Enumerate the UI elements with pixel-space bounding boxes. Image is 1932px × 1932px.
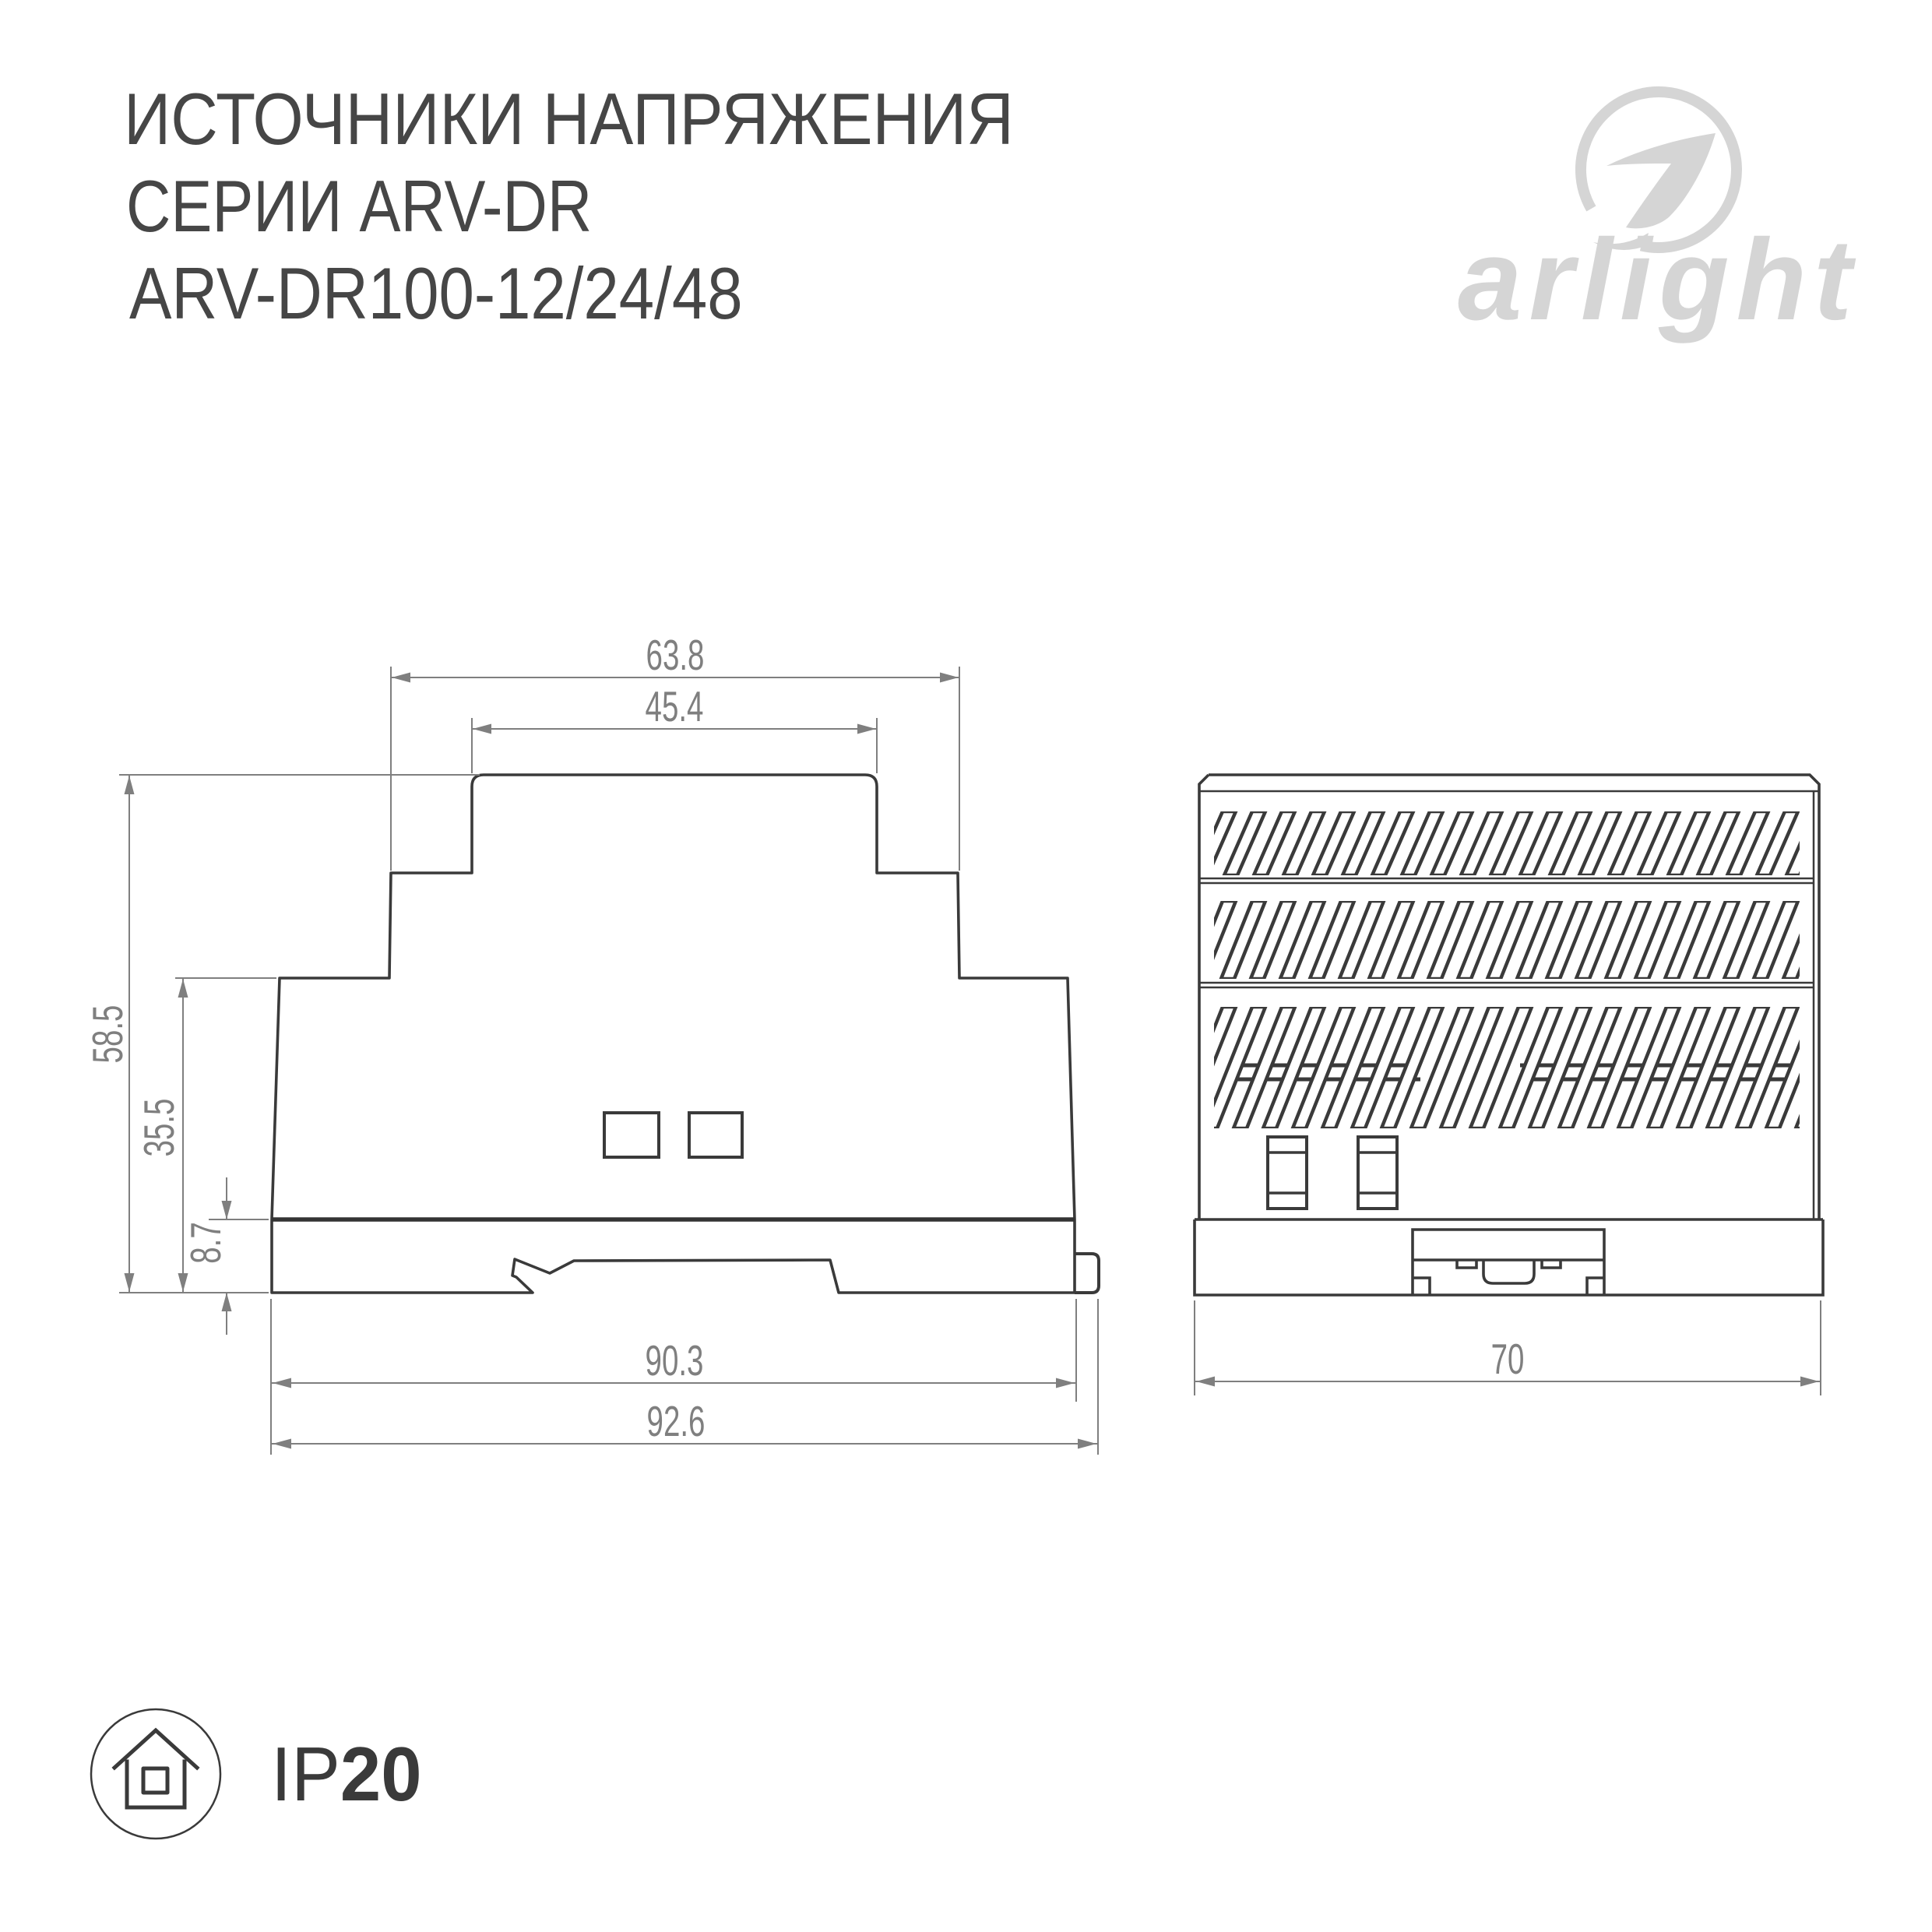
svg-text:92.6: 92.6 — [647, 1398, 706, 1445]
svg-text:ИСТОЧНИКИ НАПРЯЖЕНИЯ: ИСТОЧНИКИ НАПРЯЖЕНИЯ — [124, 78, 1014, 160]
svg-text:IP20: IP20 — [271, 1732, 422, 1817]
svg-text:СЕРИИ ARV-DR: СЕРИИ ARV-DR — [126, 166, 592, 248]
svg-text:35.5: 35.5 — [135, 1099, 183, 1157]
svg-text:63.8: 63.8 — [646, 632, 705, 679]
svg-text:ARV-DR100-12/24/48: ARV-DR100-12/24/48 — [129, 252, 743, 335]
svg-text:58.5: 58.5 — [84, 1005, 132, 1064]
svg-text:45.4: 45.4 — [646, 683, 704, 730]
svg-text:8.7: 8.7 — [182, 1222, 230, 1264]
svg-text:90.3: 90.3 — [646, 1337, 704, 1385]
svg-text:arlight: arlight — [1458, 216, 1859, 344]
svg-text:70: 70 — [1491, 1336, 1525, 1383]
